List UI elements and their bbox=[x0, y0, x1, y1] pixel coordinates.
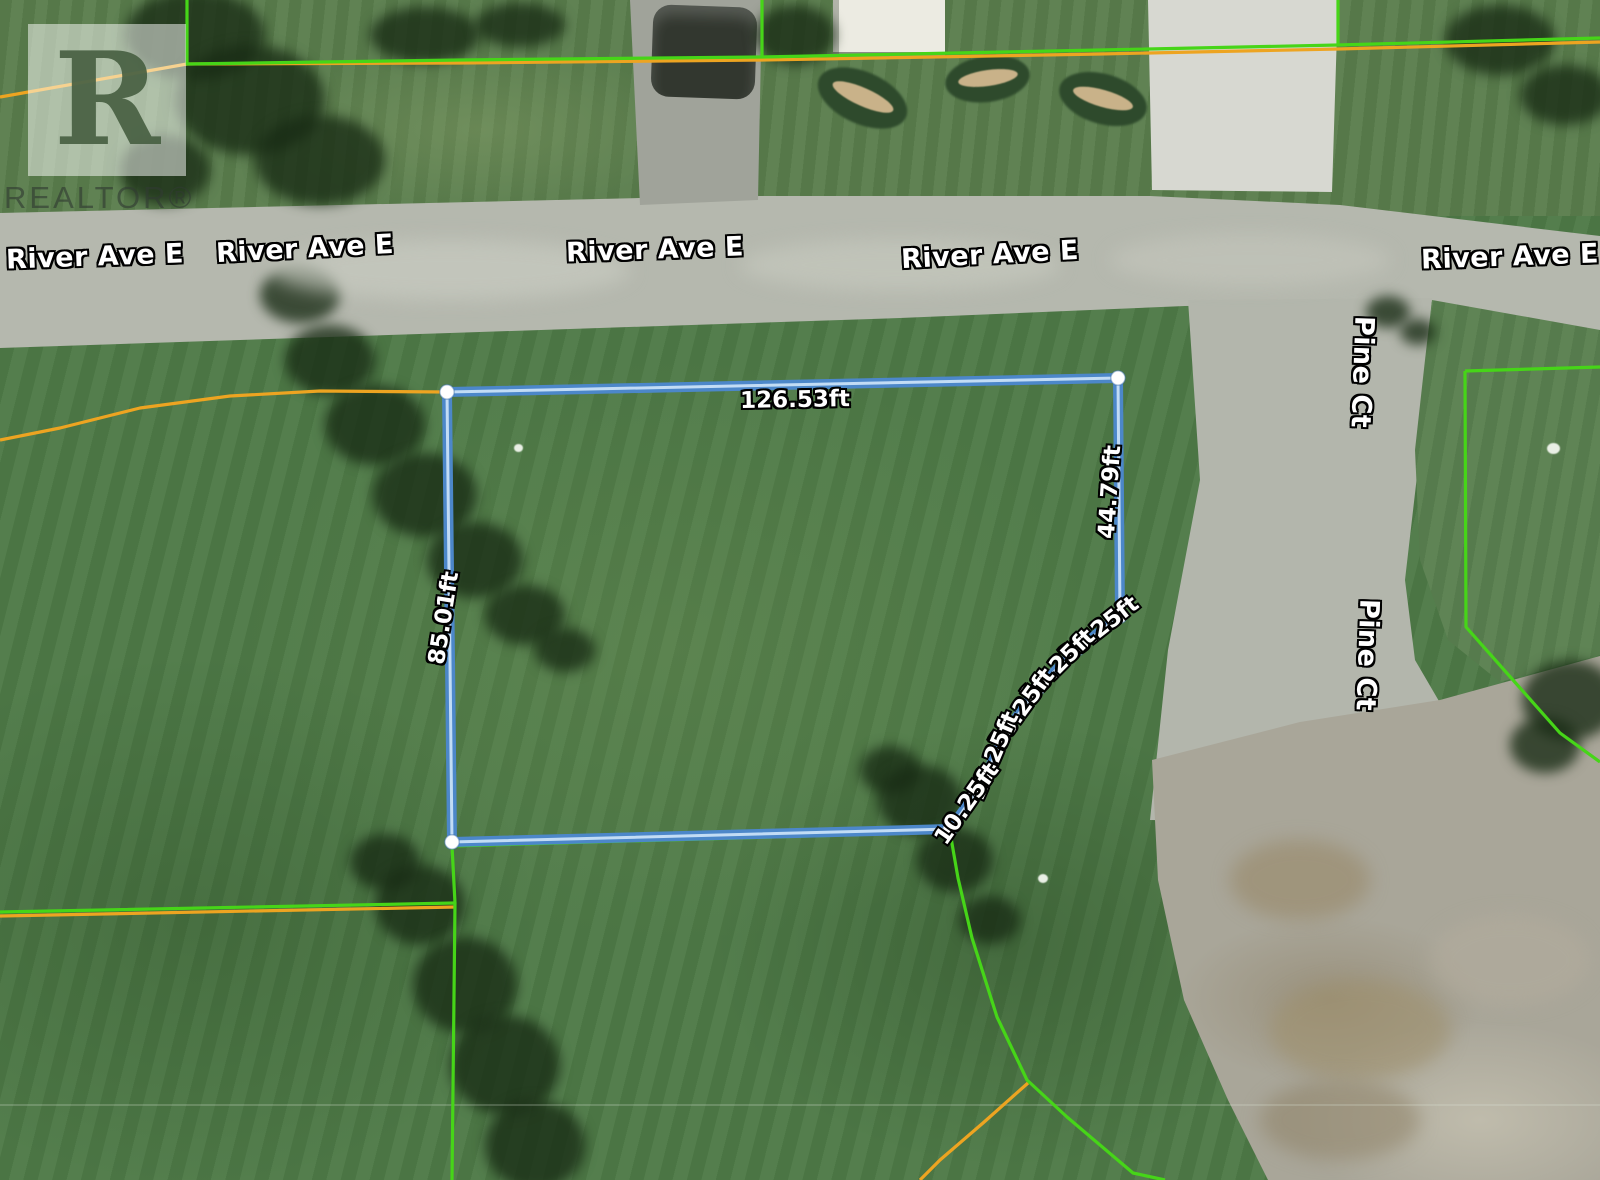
street-label: River Ave E bbox=[6, 238, 185, 275]
label-layer: River Ave ERiver Ave ERiver Ave ERiver A… bbox=[0, 0, 1600, 1180]
measurement-label: 10.25ft bbox=[929, 758, 1004, 850]
street-label: Pine Ct bbox=[1350, 598, 1385, 711]
measurement-label: 44.79ft bbox=[1094, 444, 1126, 539]
street-label: River Ave E bbox=[215, 229, 394, 269]
measurement-label: 126.53ft bbox=[740, 386, 850, 414]
street-label: River Ave E bbox=[566, 231, 745, 268]
satellite-map: River Ave ERiver Ave ERiver Ave ERiver A… bbox=[0, 0, 1600, 1180]
realtor-logo: R bbox=[28, 24, 186, 176]
street-label: River Ave E bbox=[1421, 238, 1600, 275]
measurement-label: 85.01ft bbox=[424, 570, 464, 667]
realtor-brand-text: REALTOR® bbox=[4, 180, 194, 216]
realtor-logo-letter: R bbox=[54, 36, 160, 164]
realtor-watermark: R REALTOR® bbox=[28, 24, 194, 216]
street-label: Pine Ct bbox=[1345, 315, 1380, 428]
street-label: River Ave E bbox=[900, 235, 1079, 275]
